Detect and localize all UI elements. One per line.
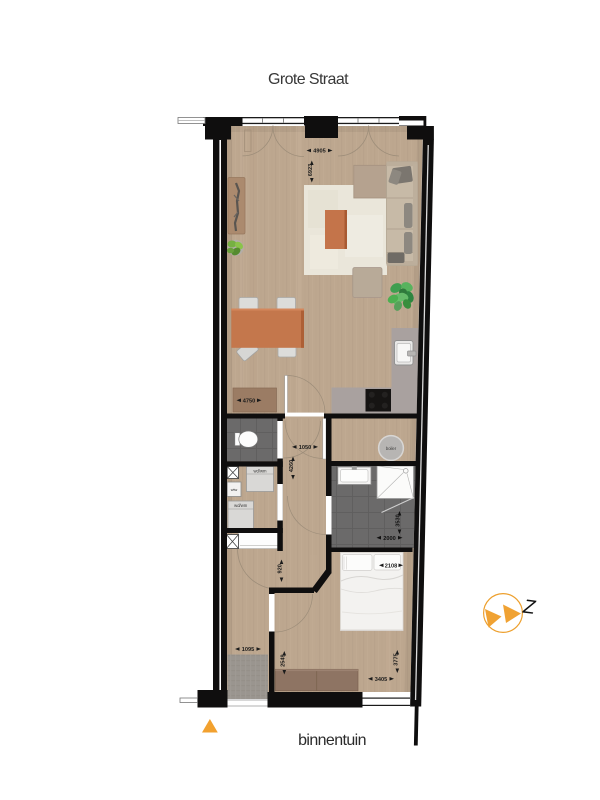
svg-text:2549: 2549 [280,654,286,666]
svg-text:3775: 3775 [393,653,399,665]
svg-text:4750: 4750 [243,398,255,404]
svg-text:4905: 4905 [313,149,325,155]
svg-text:wd/wm: wd/wm [253,468,267,473]
svg-text:920: 920 [278,564,284,573]
svg-text:2108: 2108 [385,563,397,569]
svg-text:wtw: wtw [231,488,238,492]
svg-text:3405: 3405 [375,677,387,683]
svg-text:3530: 3530 [396,514,402,526]
svg-text:4260: 4260 [289,460,295,472]
svg-text:wd/wm: wd/wm [234,503,248,508]
svg-text:binnentuin: binnentuin [298,732,366,749]
svg-text:1095: 1095 [242,647,254,653]
svg-text:6923: 6923 [308,164,314,176]
svg-text:1050: 1050 [299,445,311,451]
svg-text:boiler: boiler [386,446,397,451]
svg-text:2000: 2000 [383,536,395,542]
svg-text:Grote Straat: Grote Straat [268,71,349,88]
